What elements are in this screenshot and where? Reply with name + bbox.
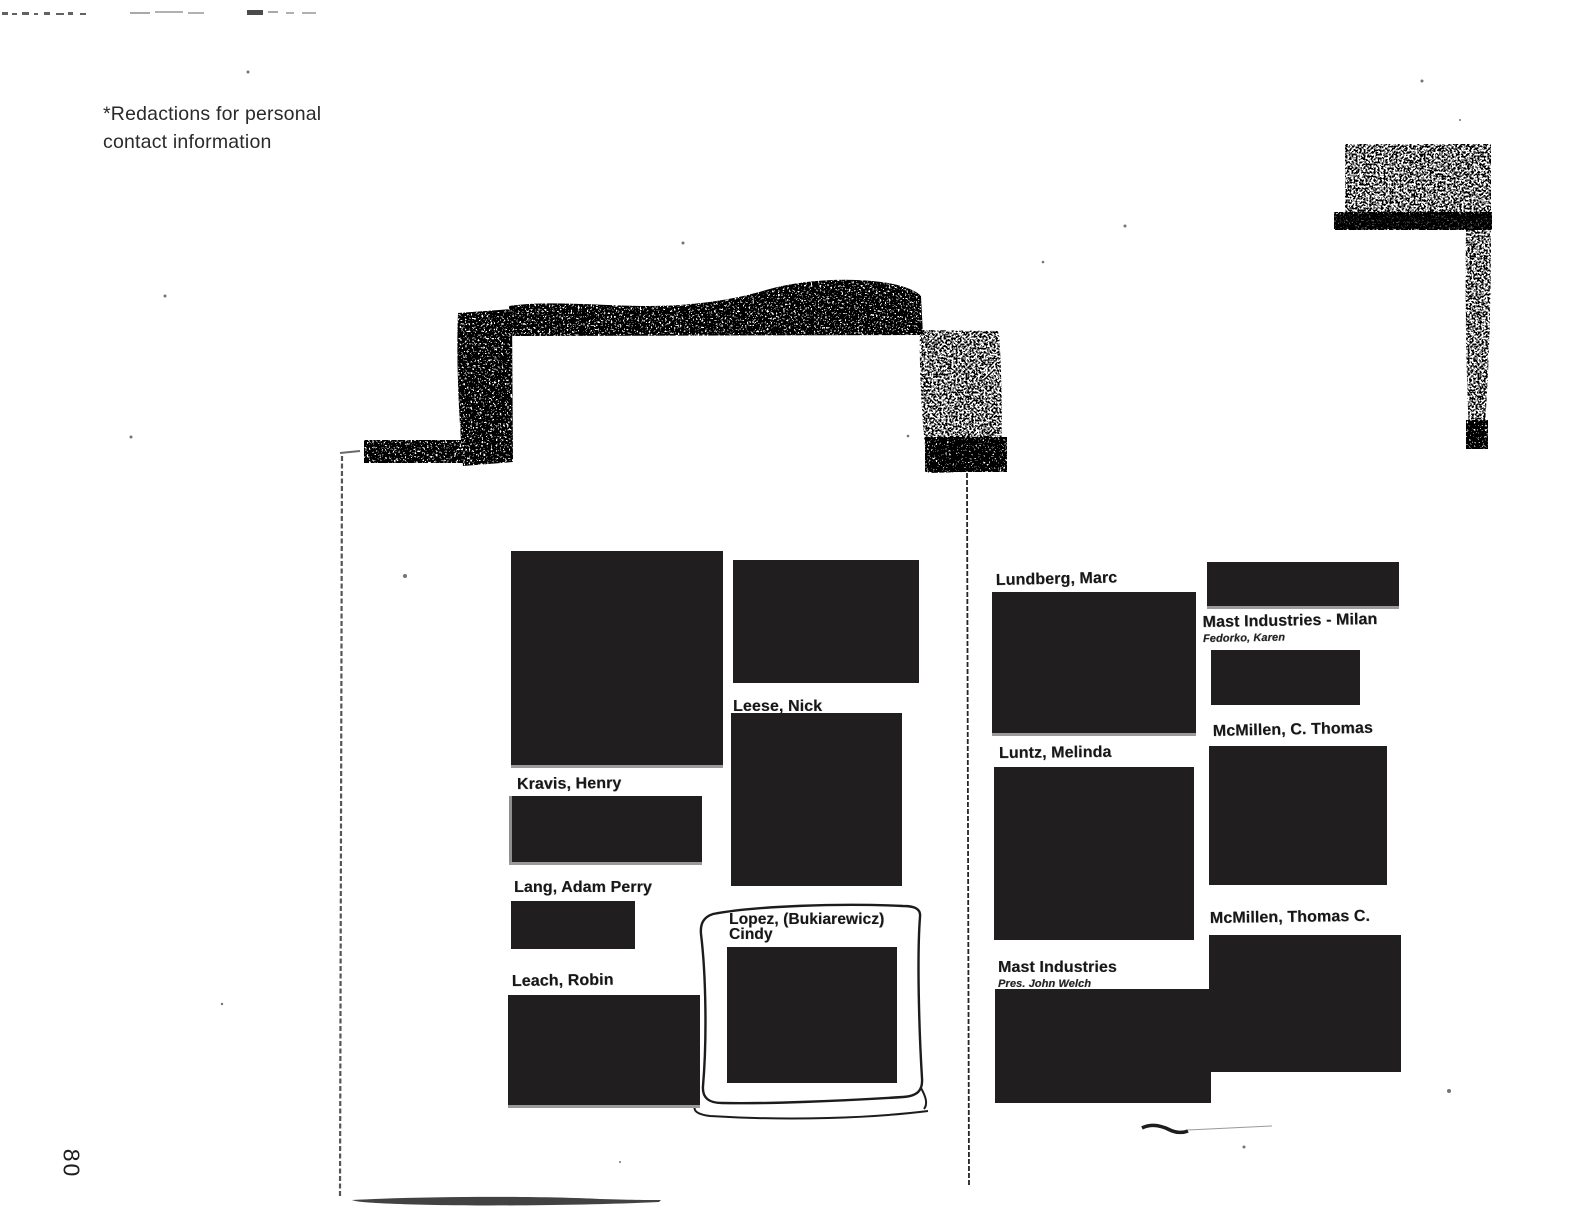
entry-label-kravis: Kravis, Henry xyxy=(517,775,622,794)
page-number-text: 80 xyxy=(57,1149,84,1179)
redaction-box xyxy=(511,551,723,765)
scan-noise-topright-block xyxy=(1345,144,1491,220)
entry-label-mast: Mast Industries Pres. John Welch xyxy=(998,959,1117,990)
entry-label-lang: Lang, Adam Perry xyxy=(514,879,652,897)
redaction-box xyxy=(1209,935,1401,1072)
redaction-box xyxy=(508,995,700,1105)
scan-noise-right-strip-dense xyxy=(925,437,1007,472)
redaction-box xyxy=(733,560,919,683)
redaction-box xyxy=(1209,746,1387,885)
redaction-note-line1: *Redactions for personal xyxy=(103,101,321,129)
entry-label-mcmillen-tc: McMillen, Thomas C. xyxy=(1210,908,1370,928)
redaction-box xyxy=(1211,650,1360,705)
entry-label-lopez-line2: Cindy xyxy=(729,927,884,943)
entry-label-mast-name: Mast Industries xyxy=(998,959,1117,976)
redaction-box xyxy=(511,901,635,949)
scan-dashes-top xyxy=(2,10,316,15)
page-edge-bottom xyxy=(352,1197,661,1206)
entry-label-luntz: Luntz, Melinda xyxy=(999,744,1112,763)
entry-label-mast-milan-name: Mast Industries - Milan xyxy=(1202,611,1377,631)
entry-label-lopez: Lopez, (Bukiarewicz) Cindy xyxy=(729,912,884,943)
redaction-note-line2: contact information xyxy=(103,129,321,157)
redaction-box xyxy=(1207,562,1399,606)
entry-label-leese: Leese, Nick xyxy=(733,698,822,716)
page-edge-left xyxy=(340,456,342,1196)
page-number: 80 xyxy=(50,1132,98,1194)
redaction-box xyxy=(509,796,702,862)
page-edge-left-hook xyxy=(340,451,360,453)
redaction-box xyxy=(727,947,897,1083)
scan-noise-left-band xyxy=(364,440,466,463)
entry-label-leach: Leach, Robin xyxy=(512,972,614,991)
page-divider xyxy=(967,473,969,1186)
redaction-box xyxy=(995,989,1211,1103)
redaction-box xyxy=(731,713,902,886)
scan-noise-topright-tail-dense xyxy=(1466,420,1488,449)
entry-label-lundberg: Lundberg, Marc xyxy=(996,569,1118,590)
scan-noise-top-band xyxy=(509,280,923,336)
scan-noise-topright-edge2 xyxy=(1334,212,1492,230)
redaction-box xyxy=(992,592,1196,733)
entry-label-mast-milan: Mast Industries - Milan Fedorko, Karen xyxy=(1202,611,1377,645)
redaction-note: *Redactions for personal contact informa… xyxy=(103,101,321,156)
scan-noise-topright-tail xyxy=(1466,229,1491,449)
scan-squiggle-bottom xyxy=(1142,1125,1272,1132)
redaction-box xyxy=(994,767,1194,940)
entry-label-mcmillen-ct: McMillen, C. Thomas xyxy=(1213,720,1373,741)
